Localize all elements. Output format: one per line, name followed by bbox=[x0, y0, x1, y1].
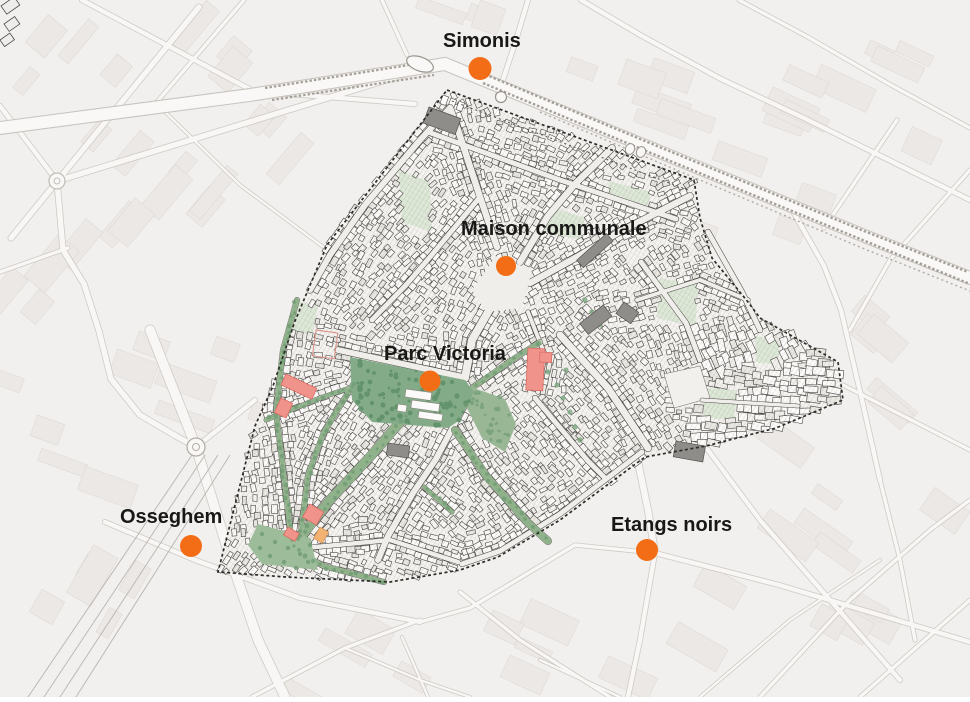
svg-text:Etangs noirs: Etangs noirs bbox=[611, 514, 732, 536]
svg-text:Maison communale: Maison communale bbox=[461, 218, 647, 240]
svg-text:Parc Victoria: Parc Victoria bbox=[384, 343, 507, 365]
svg-text:Osseghem: Osseghem bbox=[120, 506, 222, 528]
svg-text:Simonis: Simonis bbox=[443, 30, 521, 52]
